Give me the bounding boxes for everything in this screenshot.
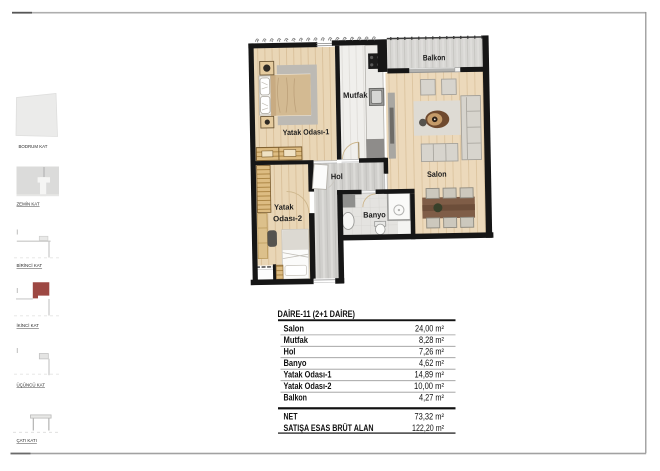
svg-text:Yatak Odası-2: Yatak Odası-2 (284, 381, 332, 391)
svg-text:Banyo: Banyo (284, 358, 308, 368)
svg-text:ÜÇÜNCÜ KAT: ÜÇÜNCÜ KAT (17, 383, 46, 388)
svg-text:24,00 m²: 24,00 m² (415, 324, 444, 334)
svg-text:Yatak: Yatak (274, 202, 294, 211)
svg-text:4,27 m²: 4,27 m² (419, 393, 444, 403)
svg-text:ÇATI KATI: ÇATI KATI (17, 438, 37, 443)
svg-text:Hol: Hol (284, 347, 296, 357)
svg-text:Mutfak: Mutfak (343, 91, 368, 100)
svg-text:Yatak Odası-1: Yatak Odası-1 (284, 370, 332, 380)
svg-text:Salon: Salon (427, 170, 447, 179)
svg-text:4,62 m²: 4,62 m² (419, 358, 444, 368)
svg-text:14,89 m²: 14,89 m² (415, 370, 445, 380)
svg-text:İKİNCİ KAT: İKİNCİ KAT (17, 323, 40, 328)
svg-text:122,20 m²: 122,20 m² (412, 423, 444, 433)
svg-text:Yatak Odası-1: Yatak Odası-1 (283, 127, 330, 137)
svg-text:Balkon: Balkon (423, 53, 446, 62)
svg-text:8,28 m²: 8,28 m² (419, 335, 444, 345)
svg-text:NET: NET (284, 412, 298, 422)
svg-text:BODRUM KAT: BODRUM KAT (19, 144, 48, 149)
svg-text:7,26 m²: 7,26 m² (419, 347, 444, 357)
svg-text:ZEMİN KAT: ZEMİN KAT (17, 202, 40, 207)
svg-text:Odası-2: Odası-2 (273, 214, 303, 224)
svg-text:SATIŞA ESAS BRÜT ALAN: SATIŞA ESAS BRÜT ALAN (284, 423, 374, 433)
svg-text:Salon: Salon (284, 324, 305, 334)
svg-text:Mutfak: Mutfak (284, 335, 309, 345)
svg-text:10,00 m²: 10,00 m² (414, 381, 444, 391)
svg-text:DAİRE-11 (2+1 DAİRE): DAİRE-11 (2+1 DAİRE) (278, 309, 356, 319)
svg-text:Hol: Hol (331, 172, 343, 181)
svg-text:73,32 m²: 73,32 m² (415, 412, 445, 422)
svg-text:Balkon: Balkon (284, 393, 308, 403)
svg-text:Banyo: Banyo (363, 210, 386, 219)
svg-text:BİRİNCİ KAT: BİRİNCİ KAT (17, 263, 43, 268)
